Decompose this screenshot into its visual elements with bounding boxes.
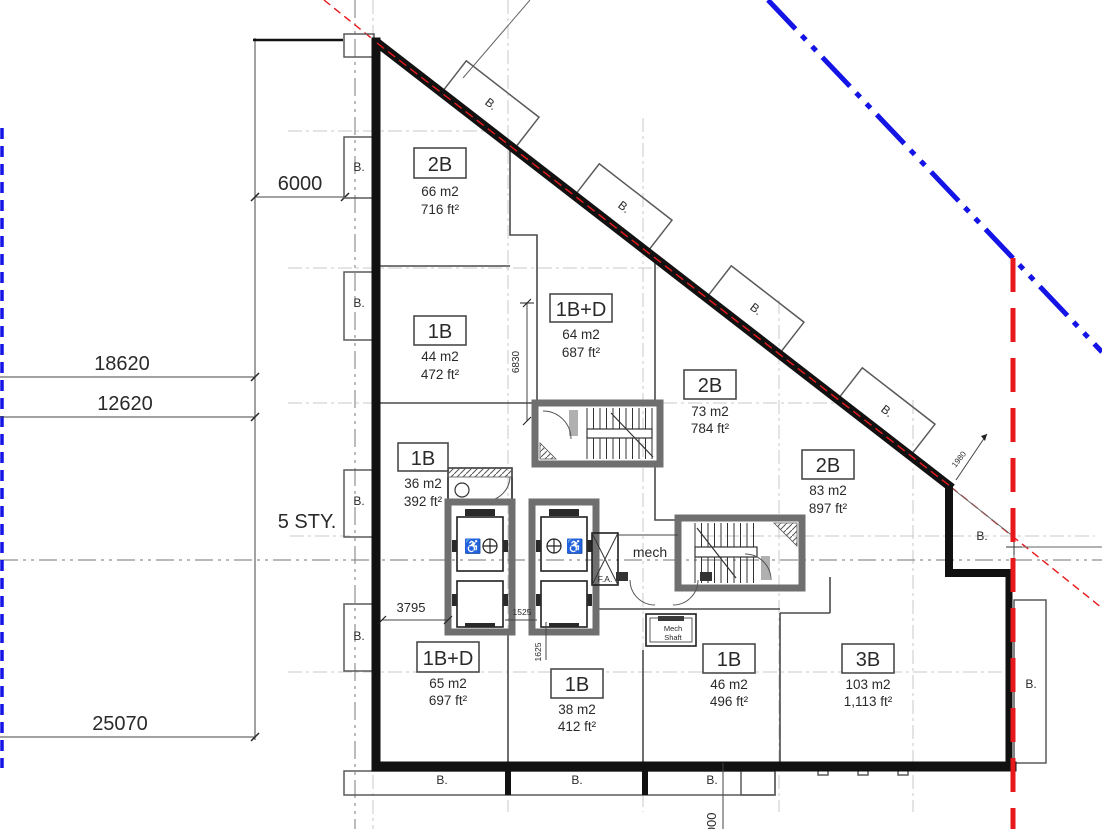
mech-shaft-label-1: Mech [664,624,682,633]
mech-shaft-label-2: Shaft [664,633,682,642]
unit-area-ft2: 412 ft² [558,719,597,734]
crosshair-icon [483,539,497,553]
unit-type: 1B [717,649,741,671]
grid-lines [0,0,1102,829]
balcony-label: B. [436,773,447,787]
dim-6000-bottom: 6000 [704,813,719,829]
unit-area-m2: 73 m2 [691,404,729,419]
unit-area-m2: 36 m2 [404,476,442,491]
unit-area-m2: 65 m2 [429,676,467,691]
unit-area-m2: 83 m2 [809,483,847,498]
unit-1BD-64: 1B+D 64 m2 687 ft² [550,294,612,360]
mech-label: mech [633,544,667,560]
unit-1B-46: 1B 46 m2 496 ft² [703,644,755,709]
balcony-label: B. [706,773,717,787]
unit-type: 1B+D [556,299,607,321]
dim-12620: 12620 [97,393,153,415]
unit-area-ft2: 687 ft² [562,345,601,360]
unit-type: 3B [856,649,880,671]
stairwell-right [678,518,802,588]
stairwell-upper [535,403,660,464]
toilet-icon [455,483,469,497]
unit-area-ft2: 697 ft² [429,693,468,708]
dim-18620: 18620 [94,353,150,375]
balcony-label: B. [1025,677,1036,691]
unit-2B-66: 2B 66 m2 716 ft² [414,148,466,217]
unit-area-m2: 38 m2 [558,702,596,717]
balcony-label: B. [747,300,765,318]
unit-1B-38: 1B 38 m2 412 ft² [551,669,603,734]
unit-2B-83: 2B 83 m2 897 ft² [802,450,854,516]
unit-1B-44: 1B 44 m2 472 ft² [414,316,466,382]
crosshair-icon [547,539,561,553]
red-centerline-upper [324,0,375,41]
unit-area-ft2: 784 ft² [691,421,730,436]
dim-3795: 3795 [397,600,426,615]
left-dimensions: 6000 18620 12620 25070 5 STY. [0,173,349,741]
unit-area-ft2: 496 ft² [710,694,749,709]
balcony-label: B. [878,402,896,420]
balcony-label: B. [571,773,582,787]
unit-type: 1B+D [423,648,474,670]
unit-type: 2B [698,375,722,397]
balcony-label: B. [615,198,633,216]
unit-1B-36: 1B 36 m2 392 ft² [398,443,448,509]
balcony-label: B. [353,296,364,310]
wheelchair-icon: ♿ [566,538,583,555]
storeys-label: 5 STY. [278,511,337,533]
unit-area-m2: 64 m2 [562,327,600,342]
unit-area-ft2: 897 ft² [809,501,848,516]
unit-type: 2B [816,455,840,477]
balcony-label: B. [353,494,364,508]
unit-3B-103: 3B 103 m2 1,113 ft² [842,644,894,709]
door-swing-arc [485,477,510,501]
small-dimensions: 3795 1525 1625 6830 1980 6000 [378,299,987,829]
fire-alarm-label: F.A. [598,574,613,584]
unit-type: 1B [565,674,589,696]
door-swing-arc [543,411,571,439]
mech-shaft: Mech Shaft [646,614,696,646]
unit-area-ft2: 716 ft² [421,202,460,217]
unit-1BD-65: 1B+D 65 m2 697 ft² [417,642,479,708]
dim-1525: 1525 [513,607,532,617]
dim-6000: 6000 [278,173,323,195]
floor-plan-page: 6000 18620 12620 25070 5 STY. B. B. B. B… [0,0,1102,829]
balcony-label: B. [976,529,987,543]
floor-plan-svg: 6000 18620 12620 25070 5 STY. B. B. B. B… [0,0,1102,829]
unit-type: 1B [411,448,435,470]
property-lines [2,0,1102,768]
balcony-label: B. [353,629,364,643]
balcony-label: B. [353,160,364,174]
unit-type: 2B [428,154,452,176]
unit-area-ft2: 472 ft² [421,367,460,382]
unit-area-ft2: 1,113 ft² [844,694,893,709]
unit-area-ft2: 392 ft² [404,494,443,509]
unit-area-m2: 103 m2 [845,677,890,692]
bathroom [448,468,512,502]
elevator-bank-left: ♿ [448,502,512,632]
blue-property-line [768,0,1102,352]
dim-6830: 6830 [511,350,522,373]
balcony-label: B. [482,95,500,113]
unit-type: 1B [428,321,452,343]
mech-room: mech [616,535,712,605]
wheelchair-icon: ♿ [464,538,481,555]
dim-25070: 25070 [92,713,148,735]
unit-area-m2: 66 m2 [421,184,459,199]
dim-1625: 1625 [533,642,543,661]
unit-area-m2: 44 m2 [421,349,459,364]
unit-area-m2: 46 m2 [710,677,748,692]
elevator-bank-center: ♿ [532,502,596,632]
door-swing-arc [630,580,655,605]
